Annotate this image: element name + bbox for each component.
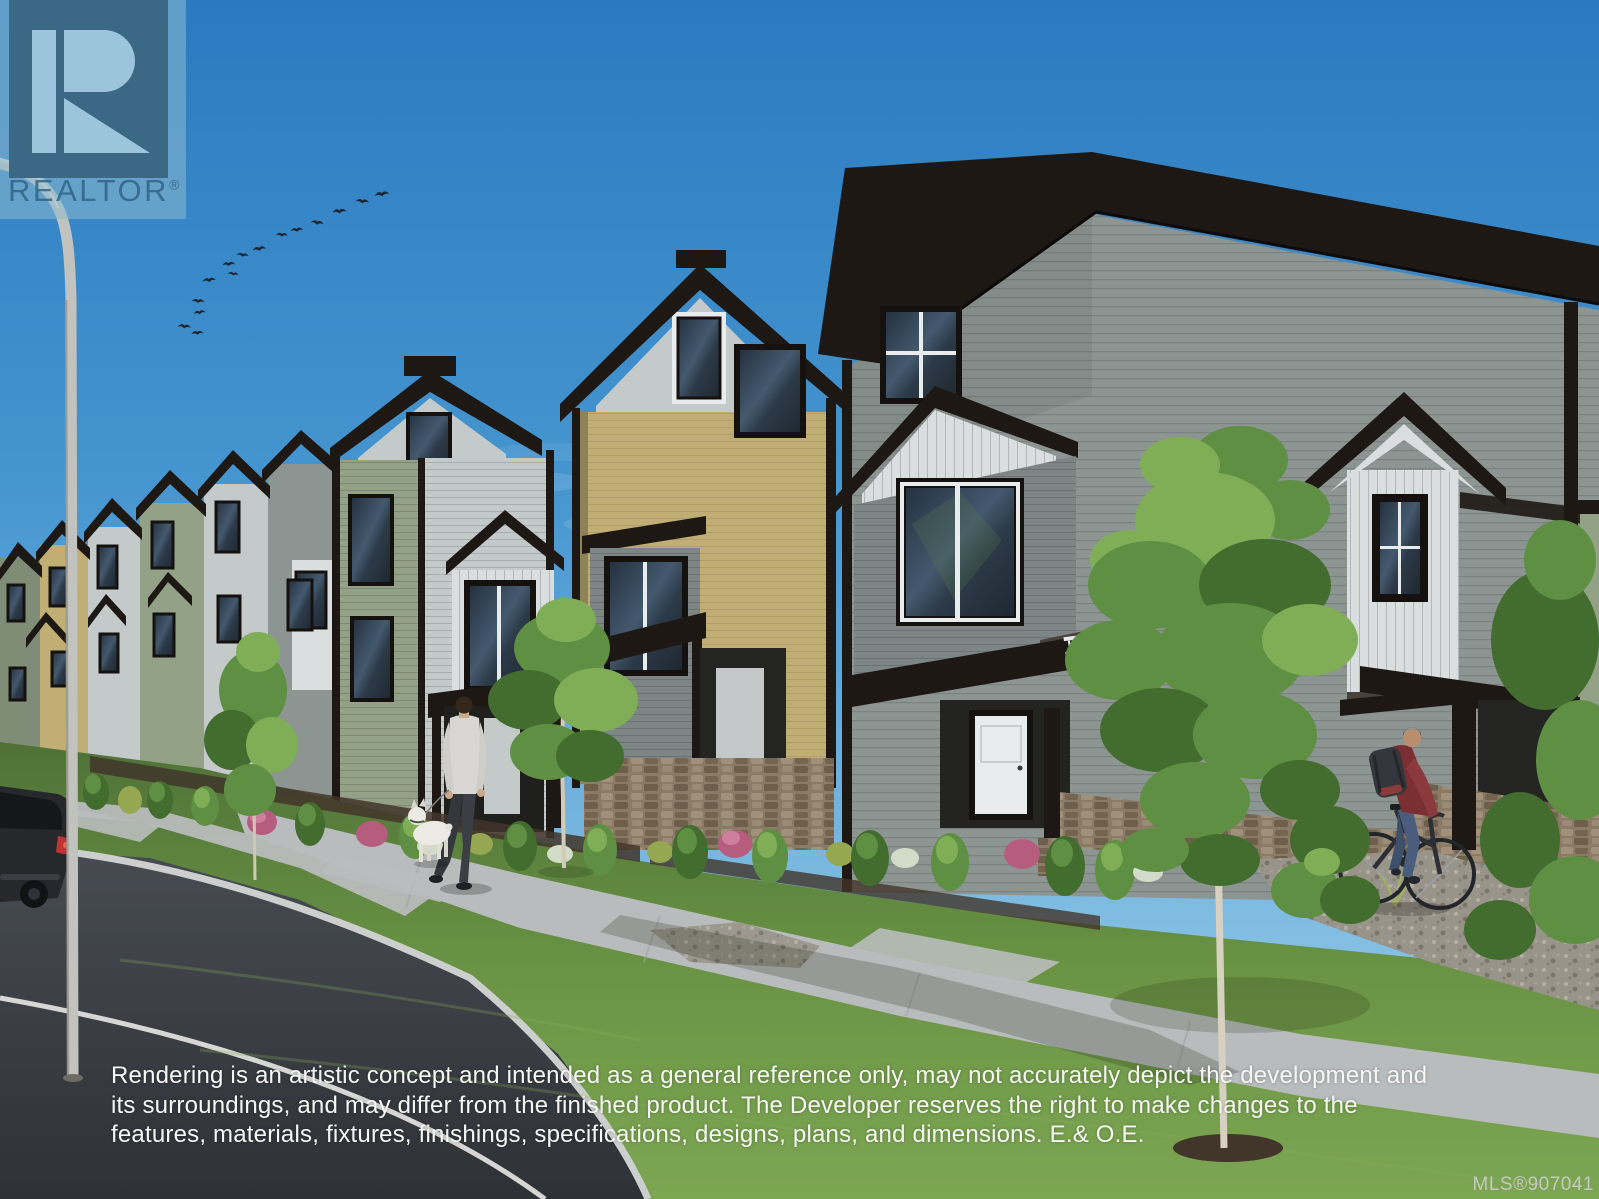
registered-symbol: ® xyxy=(169,177,179,193)
disclaimer-text: Rendering is an artistic concept and int… xyxy=(111,1061,1427,1150)
listing-photo: REALTOR® Rendering is an artistic concep… xyxy=(0,0,1599,1199)
rendering-scene xyxy=(0,0,1599,1199)
realtor-watermark: REALTOR® xyxy=(0,0,186,219)
mls-number: MLS®907041 xyxy=(1473,1174,1594,1196)
realtor-brand-text: REALTOR xyxy=(8,173,169,208)
disclaimer-line-1: Rendering is an artistic concept and int… xyxy=(111,1061,1427,1091)
disclaimer-line-2: its surroundings, and may differ from th… xyxy=(111,1091,1427,1121)
disclaimer-line-3: features, materials, fixtures, finishing… xyxy=(111,1120,1427,1150)
realtor-wordmark: REALTOR® xyxy=(8,173,179,209)
